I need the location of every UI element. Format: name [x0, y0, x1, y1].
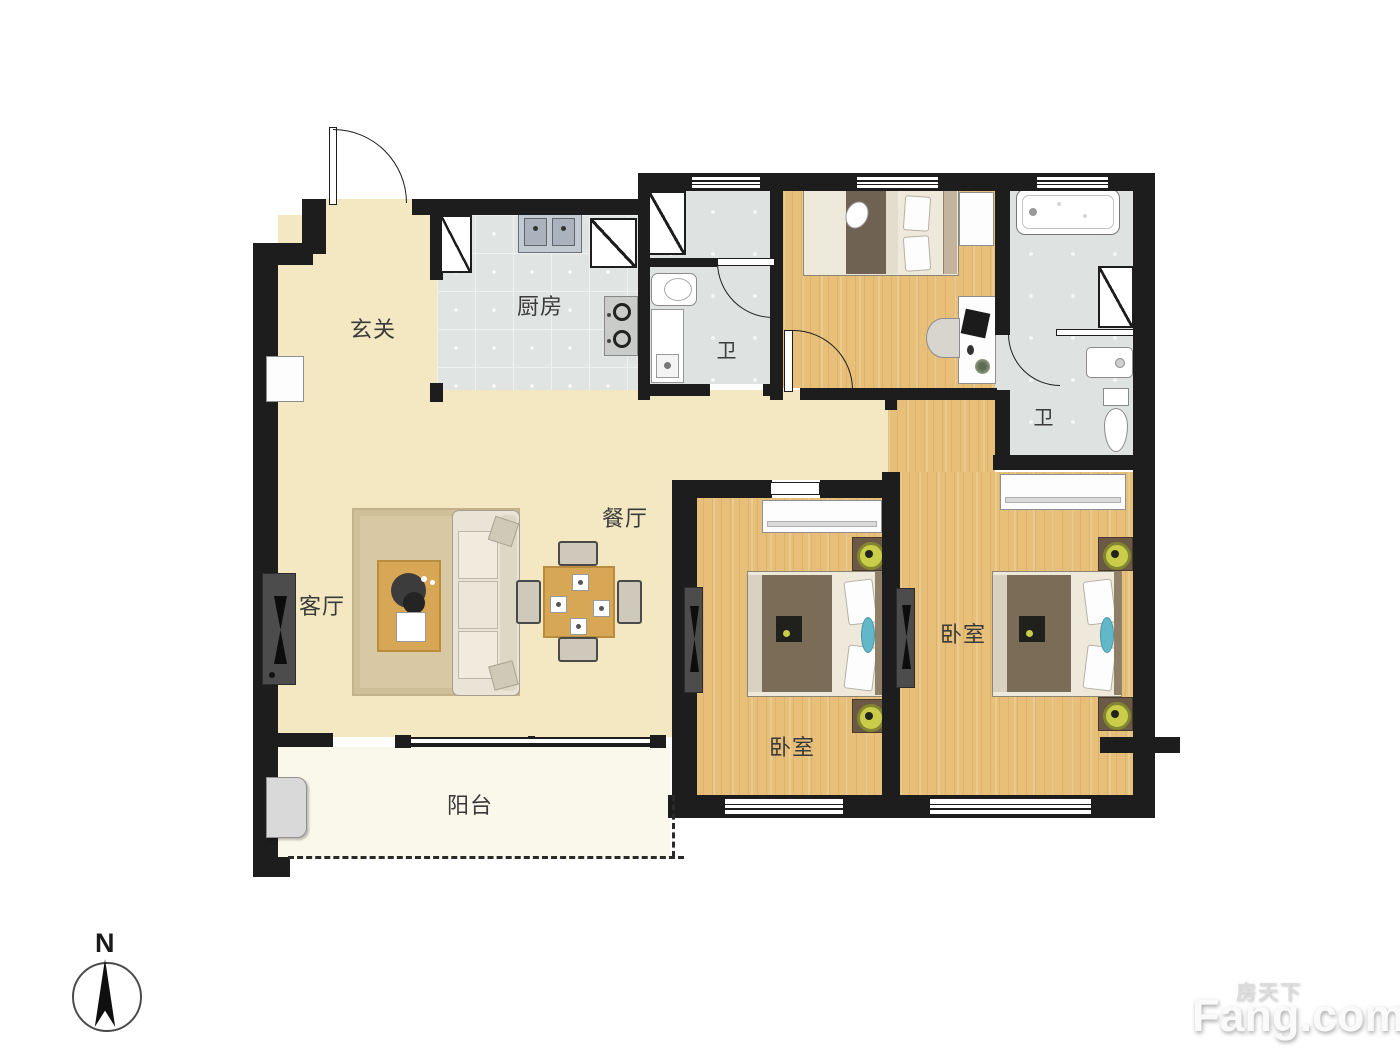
bed-a [747, 571, 883, 697]
pillow [903, 195, 931, 232]
sliding-door [411, 737, 650, 747]
window-bedroom-top-1 [690, 175, 762, 190]
speckle [1083, 214, 1087, 218]
lamp-dot [865, 712, 873, 720]
bed-remote [776, 616, 802, 642]
dining-chair [516, 580, 541, 624]
window-bath-b-top [1035, 175, 1110, 190]
burner [613, 303, 631, 321]
slider-rail [411, 743, 650, 745]
wall-bath-b-left-upper [995, 191, 1010, 335]
lamp [857, 704, 885, 732]
room-label-living: 客厅 [299, 589, 345, 621]
pillow [843, 644, 877, 691]
basin-dot [664, 362, 671, 369]
decor-dot [269, 672, 275, 678]
bedroom-top-door-leaf [784, 330, 793, 392]
balcony-dashed-bottom [288, 826, 684, 859]
bed-sheet-band [886, 191, 898, 274]
tv-cabinet-living [262, 573, 296, 685]
room-label-bedroom-b: 卧室 [940, 617, 986, 649]
decor-dot [430, 580, 435, 585]
hall-floor [672, 390, 888, 480]
wall-balcony-stub [278, 733, 333, 747]
coffee-table [377, 560, 441, 652]
plate [550, 596, 567, 613]
decor-tray [396, 612, 426, 642]
dining-chair [558, 541, 598, 566]
bathtub [1016, 189, 1120, 235]
tv-icon [274, 596, 287, 664]
pillow [1082, 644, 1116, 691]
room-label-kitchen: 厨房 [517, 289, 563, 321]
room-label-foyer: 玄关 [350, 312, 396, 344]
sofa [452, 510, 520, 696]
desk-chair [926, 318, 960, 358]
laptop [961, 309, 991, 339]
pillow [1082, 578, 1116, 625]
stove [604, 296, 638, 356]
wall-bath-a-bottom-r [763, 384, 783, 396]
pillow [903, 235, 931, 272]
toilet [651, 273, 697, 306]
window-bedroom-a [723, 797, 845, 816]
plate [570, 618, 587, 635]
burner [613, 330, 631, 348]
lamp [1103, 542, 1131, 570]
window-kitchen-right [590, 218, 637, 268]
watermark: 房天下 Fang.com [1190, 968, 1395, 1046]
room-label-dining: 餐厅 [602, 501, 648, 533]
dining-chair [617, 580, 642, 624]
lamp [857, 542, 885, 570]
wardrobe-b [1000, 474, 1126, 510]
room-label-bath-a: 卫 [717, 335, 738, 364]
headboard [875, 572, 882, 695]
wall-kitchen-stub-bottom [430, 383, 443, 402]
wall-right-lower [1133, 752, 1155, 818]
wall-bath-a-bottom-l [638, 384, 710, 396]
remote-dot [783, 630, 790, 637]
wall-right [1133, 173, 1155, 752]
basin-dot [1115, 358, 1125, 368]
decor-bowl-small [403, 592, 425, 614]
compass-north-label: N [95, 928, 115, 959]
window-bath-b-side [1098, 266, 1134, 328]
slider-cap [650, 735, 666, 748]
window-kitchen-left [440, 215, 472, 273]
sink-b [1086, 347, 1133, 378]
toilet-b [1101, 386, 1133, 460]
headboard [1114, 572, 1121, 695]
knob-dot [607, 313, 611, 317]
bed-b [992, 571, 1122, 697]
bed-remote [1019, 616, 1045, 642]
dining-chair [558, 637, 598, 662]
toilet-tank [1103, 388, 1129, 406]
desk [958, 296, 996, 384]
wall-bath-a-partition-l [650, 258, 717, 267]
dining-table [543, 566, 615, 638]
window-bedroom-top-2 [855, 175, 940, 190]
wall-step [1100, 737, 1180, 753]
faucet-dot [533, 226, 538, 231]
bath-b-partition [1056, 329, 1134, 336]
lamp-dot [1111, 550, 1119, 558]
wall-segment [278, 857, 290, 877]
lamp-dot [1111, 710, 1119, 718]
wall-bedroom-a-top-right [820, 480, 888, 498]
wall-stub [885, 400, 897, 410]
sofa-cushion [458, 581, 498, 629]
tv-icon [690, 606, 699, 672]
floor-plan: 玄关 厨房 卫 卫 客厅 餐厅 卧室 卧室 阳台 N 房天下 Fang.com [0, 0, 1400, 1050]
drain [1029, 208, 1037, 216]
window-bedroom-b [928, 797, 1093, 816]
accent-pillow [1100, 617, 1114, 653]
slider-cap [395, 735, 411, 748]
wall-top-kitchen [412, 199, 650, 215]
watermark-logo: Fang.com [1192, 990, 1400, 1042]
window-bath-a [648, 191, 686, 255]
balcony-dashed-right [672, 795, 687, 857]
speckle [1057, 202, 1061, 206]
accent-pillow [861, 617, 875, 653]
tv-icon [902, 605, 911, 669]
tv-panel-bedroom-a [684, 587, 703, 693]
compass: N [66, 928, 150, 1034]
plant [975, 359, 990, 374]
washing-machine [266, 777, 307, 838]
bedroom-a-door-leaf [770, 482, 820, 495]
wardrobe-a [762, 500, 882, 533]
faucet-dot [561, 226, 566, 231]
lamp-dot [865, 550, 873, 558]
entry-door-arc [333, 129, 407, 203]
nightstand-top [959, 192, 994, 246]
plate [593, 600, 610, 617]
sink-basin [524, 218, 547, 246]
vanity [651, 309, 684, 383]
room-label-bedroom-a: 卧室 [769, 730, 815, 762]
toilet-seat [664, 278, 692, 301]
nightstand [1098, 537, 1133, 571]
pillow [843, 578, 877, 625]
remote-dot [1026, 630, 1033, 637]
knob-dot [607, 339, 611, 343]
headboard [943, 191, 957, 274]
bed-top [803, 190, 959, 276]
kitchen-sink [518, 211, 582, 253]
plate [572, 574, 589, 591]
room-label-balcony: 阳台 [447, 788, 493, 820]
decor-dot [421, 576, 427, 582]
corridor-floor [888, 390, 995, 472]
room-label-bath-b: 卫 [1034, 402, 1055, 431]
wardrobe-rail [767, 521, 877, 527]
wall-bath-b-bottom [993, 455, 1133, 470]
lamp [1103, 702, 1131, 730]
shoe-cabinet [266, 356, 304, 402]
bath-b-doorway-floor [995, 335, 1010, 390]
tv-panel-bedroom-b [896, 588, 915, 688]
wall-bedroom-a-top-left [672, 480, 772, 498]
sink-basin [552, 218, 575, 246]
wardrobe-rail [1005, 497, 1121, 503]
nightstand [1098, 697, 1133, 731]
toilet-bowl [1104, 408, 1128, 452]
mouse-dot [967, 345, 974, 355]
